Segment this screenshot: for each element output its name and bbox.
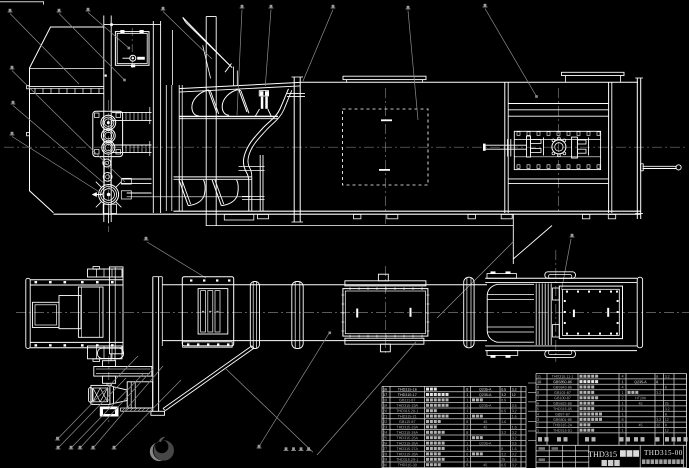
svg-text:9: 9 <box>537 386 539 390</box>
svg-text:Q235-A: Q235-A <box>479 393 492 397</box>
svg-text:GB5822-86: GB5822-86 <box>553 402 572 406</box>
svg-text:2: 2 <box>621 396 623 400</box>
svg-text:1: 1 <box>466 447 468 451</box>
svg-text:21: 21 <box>383 415 387 419</box>
svg-text:THD315-24A: THD315-24A <box>396 431 418 435</box>
svg-text:GB5850-86: GB5850-86 <box>553 380 572 384</box>
svg-text:THD315-01: THD315-01 <box>553 429 572 433</box>
svg-text:3.2: 3.2 <box>501 452 506 456</box>
svg-text:1: 1 <box>466 415 468 419</box>
svg-text:30: 30 <box>383 463 387 467</box>
svg-text:2: 2 <box>466 436 468 440</box>
svg-text:28: 28 <box>383 452 387 456</box>
svg-text:1: 1 <box>466 409 468 413</box>
svg-text:3.2: 3.2 <box>656 418 661 422</box>
svg-text:GB101-87: GB101-87 <box>554 391 571 395</box>
svg-text:1: 1 <box>621 402 623 406</box>
svg-text:45: 45 <box>638 402 642 406</box>
svg-text:GB97-87: GB97-87 <box>555 412 570 416</box>
svg-text:1: 1 <box>466 458 468 462</box>
svg-text:45: 45 <box>483 420 487 424</box>
svg-text:GB5843-86: GB5843-86 <box>553 385 572 389</box>
svg-text:18: 18 <box>383 398 387 402</box>
svg-text:3.2: 3.2 <box>512 452 517 456</box>
svg-text:3.2: 3.2 <box>512 463 517 467</box>
svg-text:THD315.29-1: THD315.29-1 <box>396 458 418 462</box>
svg-text:8: 8 <box>466 452 468 456</box>
svg-text:8: 8 <box>501 447 503 451</box>
svg-text:3.2: 3.2 <box>512 431 517 435</box>
svg-text:3.2: 3.2 <box>512 436 517 440</box>
svg-text:0.5: 0.5 <box>501 409 506 413</box>
svg-text:8: 8 <box>621 418 623 422</box>
svg-text:GB115-87: GB115-87 <box>399 420 416 424</box>
svg-text:1.6: 1.6 <box>512 415 517 419</box>
svg-text:26: 26 <box>383 442 387 446</box>
svg-text:THD315-05: THD315-05 <box>553 407 572 411</box>
svg-text:0.5: 0.5 <box>512 442 517 446</box>
svg-text:8: 8 <box>665 386 667 390</box>
svg-text:3.2: 3.2 <box>656 391 661 395</box>
svg-text:8: 8 <box>466 388 468 392</box>
svg-text:23: 23 <box>383 425 387 429</box>
svg-text:Q235-A: Q235-A <box>479 404 492 408</box>
svg-text:29: 29 <box>383 458 387 462</box>
svg-text:3.2: 3.2 <box>665 375 670 379</box>
svg-text:Q235-A: Q235-A <box>634 380 647 384</box>
svg-text:3.2: 3.2 <box>665 407 670 411</box>
svg-text:Q235-A: Q235-A <box>479 388 492 392</box>
svg-text:0.5: 0.5 <box>512 404 517 408</box>
svg-text:1: 1 <box>621 391 623 395</box>
svg-text:1: 1 <box>466 404 468 408</box>
svg-text:8: 8 <box>537 391 539 395</box>
svg-text:GB5801-86: GB5801-86 <box>553 418 572 422</box>
svg-text:10: 10 <box>537 380 541 384</box>
svg-text:THD315-25A: THD315-25A <box>396 436 418 440</box>
svg-text:12: 12 <box>512 393 516 397</box>
svg-text:4: 4 <box>537 413 539 417</box>
svg-text:THD315-19A: THD315-19A <box>396 404 418 408</box>
svg-text:45: 45 <box>483 463 487 467</box>
svg-text:4: 4 <box>621 385 623 389</box>
svg-text:0.5: 0.5 <box>501 463 506 467</box>
svg-text:THD315-00: THD315-00 <box>644 449 683 457</box>
svg-text:3.2: 3.2 <box>512 388 517 392</box>
svg-text:THD315-17: THD315-17 <box>398 393 417 397</box>
svg-text:1.6: 1.6 <box>501 420 506 424</box>
svg-text:24: 24 <box>383 431 387 435</box>
svg-text:THD315-16: THD315-16 <box>398 388 417 392</box>
svg-text:12: 12 <box>665 418 669 422</box>
svg-text:1: 1 <box>621 412 623 416</box>
svg-text:8: 8 <box>466 463 468 467</box>
svg-text:THD315-27A: THD315-27A <box>396 447 418 451</box>
svg-text:8: 8 <box>665 413 667 417</box>
svg-text:1: 1 <box>537 429 539 433</box>
svg-text:3.2: 3.2 <box>512 409 517 413</box>
svg-text:8: 8 <box>466 431 468 435</box>
svg-text:THD315-30: THD315-30 <box>398 463 417 467</box>
svg-text:11: 11 <box>537 375 541 379</box>
svg-text:2: 2 <box>537 423 539 427</box>
svg-text:THD315.11-1: THD315.11-1 <box>552 375 574 379</box>
svg-text:8: 8 <box>665 423 667 427</box>
svg-text:3.2: 3.2 <box>501 393 506 397</box>
svg-text:27: 27 <box>383 447 387 451</box>
svg-text:THD315-21: THD315-21 <box>398 415 417 419</box>
svg-text:5: 5 <box>537 407 539 411</box>
svg-text:16: 16 <box>383 388 387 392</box>
svg-text:0.5: 0.5 <box>501 398 506 402</box>
svg-text:25: 25 <box>665 402 669 406</box>
svg-text:3: 3 <box>537 418 539 422</box>
svg-text:8: 8 <box>466 420 468 424</box>
svg-text:THD315-23A: THD315-23A <box>396 425 418 429</box>
svg-text:8: 8 <box>656 375 658 379</box>
svg-text:Q235-A: Q235-A <box>479 442 492 446</box>
svg-text:12: 12 <box>665 429 669 433</box>
svg-text:0.5: 0.5 <box>512 458 517 462</box>
svg-text:8: 8 <box>656 380 658 384</box>
svg-text:45: 45 <box>483 425 487 429</box>
svg-text:7: 7 <box>537 396 539 400</box>
svg-text:1: 1 <box>466 398 468 402</box>
svg-text:1: 1 <box>466 393 468 397</box>
svg-text:45: 45 <box>638 423 642 427</box>
svg-text:1.6: 1.6 <box>512 447 517 451</box>
svg-text:1: 1 <box>621 423 623 427</box>
svg-text:1: 1 <box>621 407 623 411</box>
svg-text:1: 1 <box>621 380 623 384</box>
svg-text:12: 12 <box>656 423 660 427</box>
svg-text:4: 4 <box>621 375 623 379</box>
svg-text:HT200: HT200 <box>635 396 646 400</box>
svg-text:THD315-28A: THD315-28A <box>396 452 418 456</box>
svg-text:1.6: 1.6 <box>512 425 517 429</box>
svg-text:17: 17 <box>383 393 387 397</box>
svg-text:THD315-2A: THD315-2A <box>553 423 573 427</box>
svg-text:1: 1 <box>466 442 468 446</box>
svg-text:0.5: 0.5 <box>501 388 506 392</box>
svg-text:19: 19 <box>383 404 387 408</box>
svg-text:1: 1 <box>621 429 623 433</box>
svg-text:GB111-87: GB111-87 <box>399 398 415 402</box>
svg-text:6: 6 <box>537 402 539 406</box>
svg-text:THD315: THD315 <box>588 450 617 459</box>
svg-text:2: 2 <box>466 425 468 429</box>
svg-text:20: 20 <box>383 409 387 413</box>
svg-text:GB100-87: GB100-87 <box>554 396 571 400</box>
svg-text:3.2: 3.2 <box>501 431 506 435</box>
svg-text:25: 25 <box>383 436 387 440</box>
svg-text:22: 22 <box>383 420 387 424</box>
svg-text:THD315-26A: THD315-26A <box>396 442 418 446</box>
svg-text:THD315.20-1: THD315.20-1 <box>396 409 418 413</box>
svg-text:25: 25 <box>501 458 505 462</box>
